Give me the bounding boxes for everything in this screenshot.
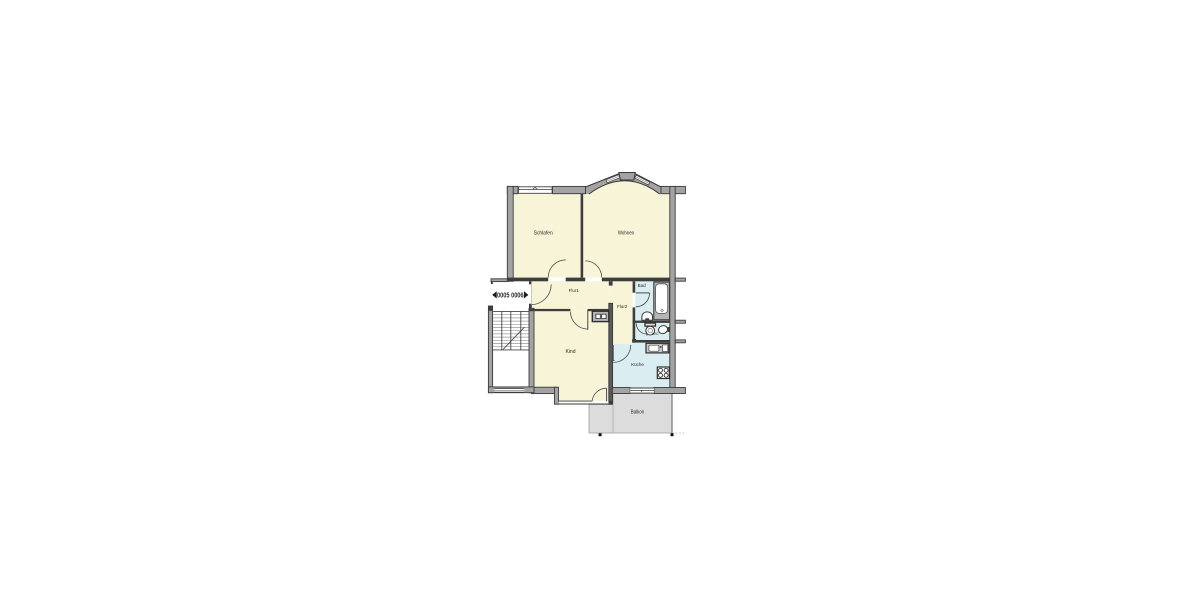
svg-text:Küche: Küche [631,362,644,367]
svg-text:0005 0006: 0005 0006 [497,291,524,300]
svg-text:Schlafen: Schlafen [534,231,553,237]
svg-text:WC: WC [652,331,659,336]
svg-text:Balkon: Balkon [631,410,645,416]
svg-text:Flur1: Flur1 [569,288,580,293]
svg-text:Kind: Kind [565,349,575,355]
svg-text:Bad: Bad [638,283,647,288]
svg-text:Wohnen: Wohnen [618,231,634,237]
svg-text:Flur2: Flur2 [617,304,628,309]
